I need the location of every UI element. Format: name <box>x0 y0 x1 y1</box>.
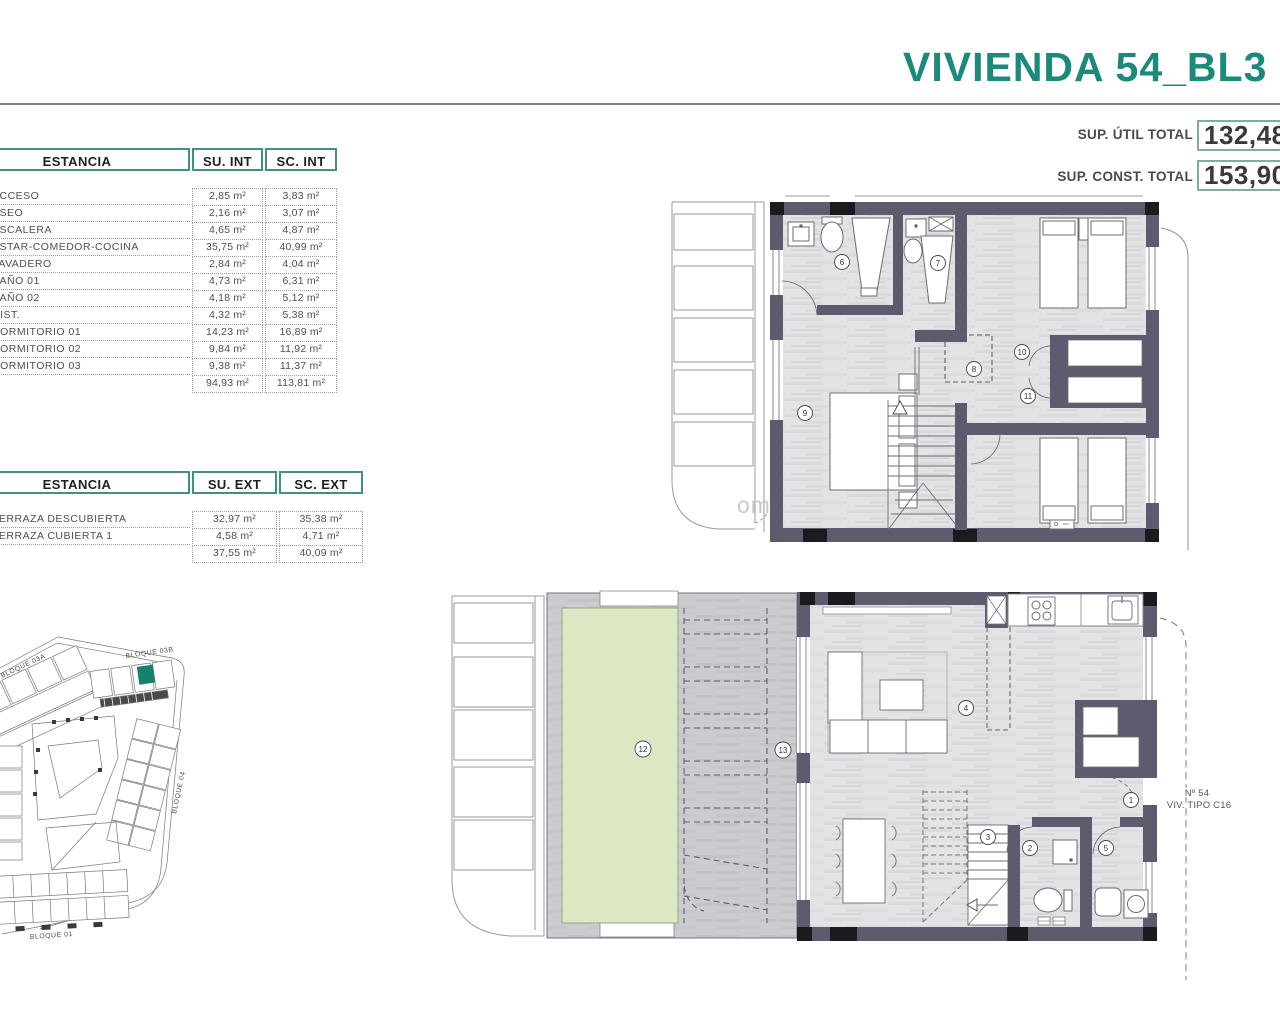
area-sc-cell: 40,99 m² <box>265 239 337 257</box>
sup-const-label: SUP. CONST. TOTAL <box>993 169 1193 184</box>
table-row: DORMITORIO 029,84 m²11,92 m² <box>0 341 337 358</box>
area-su-cell: 9,84 m² <box>192 341 263 359</box>
area-su-cell: 2,16 m² <box>192 205 263 223</box>
table-row: DORMITORIO 0114,23 m²16,89 m² <box>0 324 337 341</box>
table-row: TERRAZA CUBIERTA 14,58 m²4,71 m² <box>0 528 363 545</box>
table-row: TERRAZA DESCUBIERTA32,97 m²35,38 m² <box>0 511 363 528</box>
table-row: ESCALERA4,65 m²4,87 m² <box>0 222 337 239</box>
room-name-cell: BAÑO 02 <box>0 290 190 307</box>
area-su-cell: 32,97 m² <box>192 511 277 529</box>
room-name-cell: BAÑO 01 <box>0 273 190 290</box>
svg-text:VIV. TIPO C16: VIV. TIPO C16 <box>1167 800 1231 811</box>
area-sc-cell: 3,07 m² <box>265 205 337 223</box>
unit-54-highlight <box>137 665 155 685</box>
upper-floor-plan: 6 7 8 9 10 11 <box>655 188 1200 583</box>
area-su-cell: 4,32 m² <box>192 307 263 325</box>
area-su-cell: 4,73 m² <box>192 273 263 291</box>
table-total-row: 37,55 m²40,09 m² <box>0 545 363 562</box>
area-su-cell: 2,85 m² <box>192 188 263 206</box>
label-bloque-01: BLOQUE 01 <box>30 931 74 941</box>
area-sc-cell: 3,83 m² <box>265 188 337 206</box>
room-name-cell: TERRAZA CUBIERTA 1 <box>0 528 190 545</box>
page-title: VIVIENDA 54_BL3 <box>903 44 1267 91</box>
area-su-cell: 2,84 m² <box>192 256 263 274</box>
unit-label: Nº 54 VIV. TIPO C16 <box>1167 788 1231 811</box>
area-sc-cell: 4,87 m² <box>265 222 337 240</box>
table-header: ESTANCIA SU. EXT SC. EXT <box>0 471 363 494</box>
column-header-su-ext: SU. EXT <box>192 471 277 494</box>
site-plan: BLOQUE 03A BLOQUE 03B BLOQUE 04 BLOQUE 0… <box>0 628 200 963</box>
neighbour-structure-outline <box>452 596 544 936</box>
neighbour-terrace-outline <box>672 202 768 532</box>
header-divider <box>0 103 1280 105</box>
svg-text:6: 6 <box>840 258 845 267</box>
table-row: BAÑO 024,18 m²5,12 m² <box>0 290 337 307</box>
sup-util-value: 132,48 <box>1199 122 1280 149</box>
table-row: DORMITORIO 039,38 m²11,37 m² <box>0 358 337 375</box>
table-row: BAÑO 014,73 m²6,31 m² <box>0 273 337 290</box>
room-name-cell: ASEO <box>0 205 190 222</box>
sup-util-label: SUP. ÚTIL TOTAL <box>993 127 1193 142</box>
column-header-estancia: ESTANCIA <box>0 148 190 171</box>
room-name-cell: LAVADERO <box>0 256 190 273</box>
svg-text:Nº 54: Nº 54 <box>1185 788 1210 799</box>
table-row: ACCESO2,85 m²3,83 m² <box>0 188 337 205</box>
table-row: LAVADERO2,84 m²4,04 m² <box>0 256 337 273</box>
area-su-cell: 94,93 m² <box>192 375 263 393</box>
master-bed <box>830 374 917 508</box>
room-name-cell: ESTAR-COMEDOR-COCINA <box>0 239 190 256</box>
area-su-cell: 4,18 m² <box>192 290 263 308</box>
area-sc-cell: 4,71 m² <box>279 528 363 546</box>
room-name-cell: TERRAZA DESCUBIERTA <box>0 511 190 528</box>
garden-area <box>562 608 678 923</box>
svg-text:11: 11 <box>1024 392 1033 401</box>
lot-boundary-dashed <box>1160 618 1186 980</box>
label-bloque-03b: BLOQUE 03B <box>125 646 174 660</box>
area-sc-cell: 5,12 m² <box>265 290 337 308</box>
area-su-cell: 4,58 m² <box>192 528 277 546</box>
column-header-sc-ext: SC. EXT <box>279 471 363 494</box>
room-name-cell <box>0 375 190 392</box>
svg-text:2: 2 <box>1028 844 1033 853</box>
ground-floor-plan: Nº 54 VIV. TIPO C16 1 2 3 4 5 12 13 <box>440 580 1250 980</box>
interior-table-body: ACCESO2,85 m²3,83 m²ASEO2,16 m²3,07 m²ES… <box>0 188 337 392</box>
svg-text:10: 10 <box>1018 348 1027 357</box>
area-sc-cell: 5,38 m² <box>265 307 337 325</box>
exterior-areas-table: ESTANCIA SU. EXT SC. EXT TERRAZA DESCUBI… <box>0 471 363 562</box>
terrace-step-bottom <box>600 923 674 937</box>
area-sc-cell: 11,37 m² <box>265 358 337 376</box>
column-header-sc-int: SC. INT <box>265 148 337 171</box>
svg-text:5: 5 <box>1104 844 1109 853</box>
area-sc-cell: 11,92 m² <box>265 341 337 359</box>
area-su-cell: 35,75 m² <box>192 239 263 257</box>
table-row: ESTAR-COMEDOR-COCINA35,75 m²40,99 m² <box>0 239 337 256</box>
svg-text:3: 3 <box>986 833 991 842</box>
svg-text:4: 4 <box>964 704 969 713</box>
area-sc-cell: 113,81 m² <box>265 375 337 393</box>
svg-text:9: 9 <box>803 409 808 418</box>
exterior-table-body: TERRAZA DESCUBIERTA32,97 m²35,38 m²TERRA… <box>0 511 363 562</box>
sup-util-box: 132,48 <box>1197 120 1280 151</box>
room-name-cell: DIST. <box>0 307 190 324</box>
plan-sheet: VIVIENDA 54_BL3 SUP. ÚTIL TOTAL 132,48 S… <box>0 0 1280 1024</box>
svg-text:7: 7 <box>936 259 941 268</box>
svg-text:1: 1 <box>1129 796 1134 805</box>
column-header-estancia: ESTANCIA <box>0 471 190 494</box>
interior-areas-table: ESTANCIA SU. INT SC. INT ACCESO2,85 m²3,… <box>0 148 337 392</box>
table-row: DIST.4,32 m²5,38 m² <box>0 307 337 324</box>
room-name-cell: DORMITORIO 03 <box>0 358 190 375</box>
svg-text:12: 12 <box>639 745 648 754</box>
sup-const-box: 153,90 <box>1197 160 1280 191</box>
column-header-su-int: SU. INT <box>192 148 263 171</box>
area-sc-cell: 4,04 m² <box>265 256 337 274</box>
area-su-cell: 14,23 m² <box>192 324 263 342</box>
table-row: ASEO2,16 m²3,07 m² <box>0 205 337 222</box>
room-name-cell: DORMITORIO 02 <box>0 341 190 358</box>
area-sc-cell: 6,31 m² <box>265 273 337 291</box>
watermark-fragment: om <box>737 492 771 519</box>
area-su-cell: 37,55 m² <box>192 545 277 563</box>
area-sc-cell: 40,09 m² <box>279 545 363 563</box>
area-su-cell: 4,65 m² <box>192 222 263 240</box>
table-header: ESTANCIA SU. INT SC. INT <box>0 148 337 171</box>
svg-text:13: 13 <box>779 746 788 755</box>
room-name-cell: DORMITORIO 01 <box>0 324 190 341</box>
kitchen <box>985 592 1143 628</box>
area-su-cell: 9,38 m² <box>192 358 263 376</box>
terrace-step-top <box>600 591 678 606</box>
room-name-cell: ACCESO <box>0 188 190 205</box>
upper-balcony-outline <box>1161 228 1188 550</box>
svg-text:8: 8 <box>972 365 977 374</box>
room-name-cell: ESCALERA <box>0 222 190 239</box>
area-sc-cell: 35,38 m² <box>279 511 363 529</box>
table-total-row: 94,93 m²113,81 m² <box>0 375 337 392</box>
sup-const-value: 153,90 <box>1199 162 1280 189</box>
room-name-cell <box>0 545 190 562</box>
area-sc-cell: 16,89 m² <box>265 324 337 342</box>
